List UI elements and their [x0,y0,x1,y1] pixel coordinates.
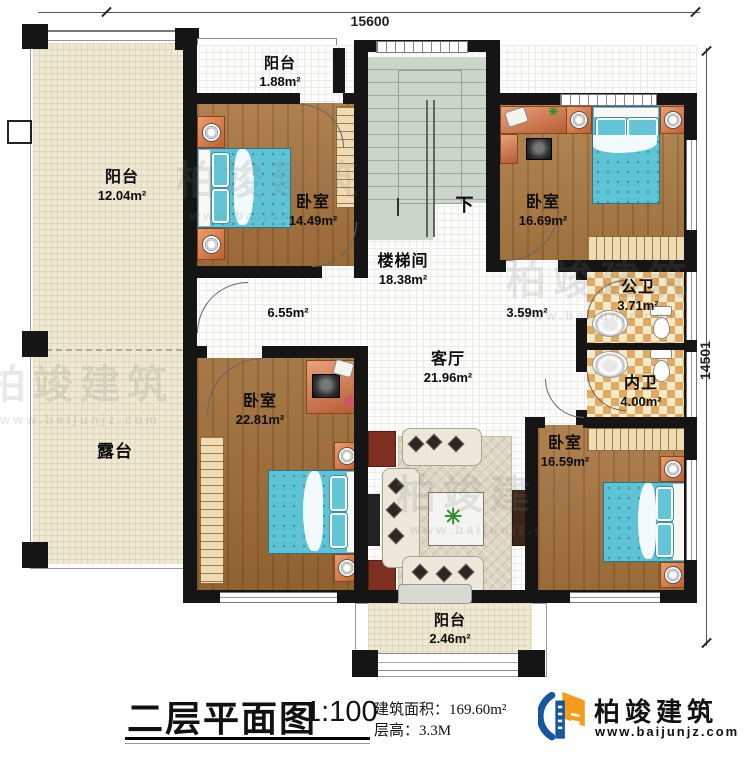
wall [576,343,697,350]
wardrobe [200,436,224,584]
lamp-icon [664,111,682,129]
wall [354,346,368,593]
bed-sheet [303,471,323,551]
building-info: 建筑面积：169.60m² 层高：3.3M [374,700,506,742]
bed-sheet [593,135,657,153]
company-website: www.baijunjz.com [595,724,739,739]
nightstand [660,562,686,588]
nightstand [566,106,592,134]
window [570,592,660,603]
wall [576,272,587,280]
right-dimension-label: 14501 [697,316,713,380]
railing-line [48,30,175,32]
lamp-icon [570,111,588,129]
stair-arrow [397,198,399,216]
door-step [398,584,472,604]
plan-scale: 1:100 [305,696,378,729]
window [560,94,657,106]
pillow [212,153,229,187]
wall [183,266,322,278]
wall [558,260,697,272]
top-dimension-label: 15600 [340,13,400,29]
bed-sheet [638,483,656,559]
title-underline [125,737,370,740]
floor-plan: 15600 14501 ✳ [0,0,750,759]
wall [183,346,207,358]
bed [603,482,686,562]
window [686,140,697,230]
built-area-value: 169.60m² [449,702,506,718]
lamp-icon [202,235,221,254]
pillow [656,487,673,521]
plant-icon: ✳ [548,104,559,120]
bed [592,106,660,204]
wall [354,40,368,278]
column [22,331,48,357]
left-balcony-floor [33,43,184,564]
window [220,592,337,603]
room-label-public-bath: 公卫 3.71m² [592,278,684,314]
lamp-icon [664,566,682,584]
nightstand [660,106,686,134]
plan-title: 二层平面图 [127,690,317,742]
company-logo-icon [538,688,590,746]
wall [197,93,300,104]
column-marker [7,120,32,144]
headboard [198,149,211,227]
stair-landing [368,203,433,240]
room-label-balcony-left: 阳台 12.04m² [62,168,182,204]
balcony-terrace-divider [36,349,182,351]
window [686,352,697,418]
floor-height-value: 3.3M [419,723,451,739]
nightstand [197,116,225,148]
column [22,542,48,568]
window [686,272,697,340]
tv-icon [368,494,380,546]
area-label-hall-east: 3.59m² [477,305,577,321]
tv-icon [312,374,340,398]
wall [583,417,697,428]
pillow [330,476,347,511]
nightstand [660,456,686,482]
room-label-bedroom-tl: 卧室 14.49m² [263,193,363,229]
lamp-icon [202,123,221,142]
wall [183,40,197,603]
wall [262,346,368,358]
plant-icon: ✳ [444,504,462,530]
cabinet [368,431,396,467]
floor-height-label: 层高： [374,723,419,739]
room-label-living: 客厅 21.96m² [388,350,508,386]
room-label-balcony-bottom: 阳台 2.46m² [390,612,510,647]
room-label-bedroom-bl: 卧室 22.81m² [210,392,310,428]
pillow [212,189,229,223]
bed-sheet [234,149,254,225]
nightstand [197,228,225,260]
tv-icon [526,138,552,160]
closet [587,236,689,262]
desk-return [500,134,518,164]
pillow [330,513,347,548]
window [686,460,697,560]
room-label-stair-hall: 楼梯间 18.38m² [343,252,463,288]
column [352,650,378,677]
column [22,24,48,49]
wall [486,260,506,272]
room-label-terrace: 露台 [55,441,175,462]
lamp-icon [664,460,682,478]
room-label-bedroom-tr: 卧室 16.69m² [493,193,593,229]
title-underline-thin [125,743,370,744]
pillow [656,523,673,557]
balcony-sill [368,653,534,671]
room-label-bedroom-br: 卧室 16.59m² [515,434,615,470]
built-area-label: 建筑面积： [374,702,449,718]
column [518,650,545,677]
area-label-hall-west: 6.55m² [238,305,338,321]
headboard [593,107,659,118]
room-label-balcony-top: 阳台 1.88m² [220,55,340,90]
stair-rail [426,100,435,237]
stair-direction-label: 下 [448,194,482,217]
window [376,41,468,53]
title-block: 二层平面图 1:100 建筑面积：169.60m² 层高：3.3M 柏竣建筑 w… [0,684,750,759]
bed [268,470,360,554]
room-label-private-bath: 内卫 4.00m² [595,374,687,410]
